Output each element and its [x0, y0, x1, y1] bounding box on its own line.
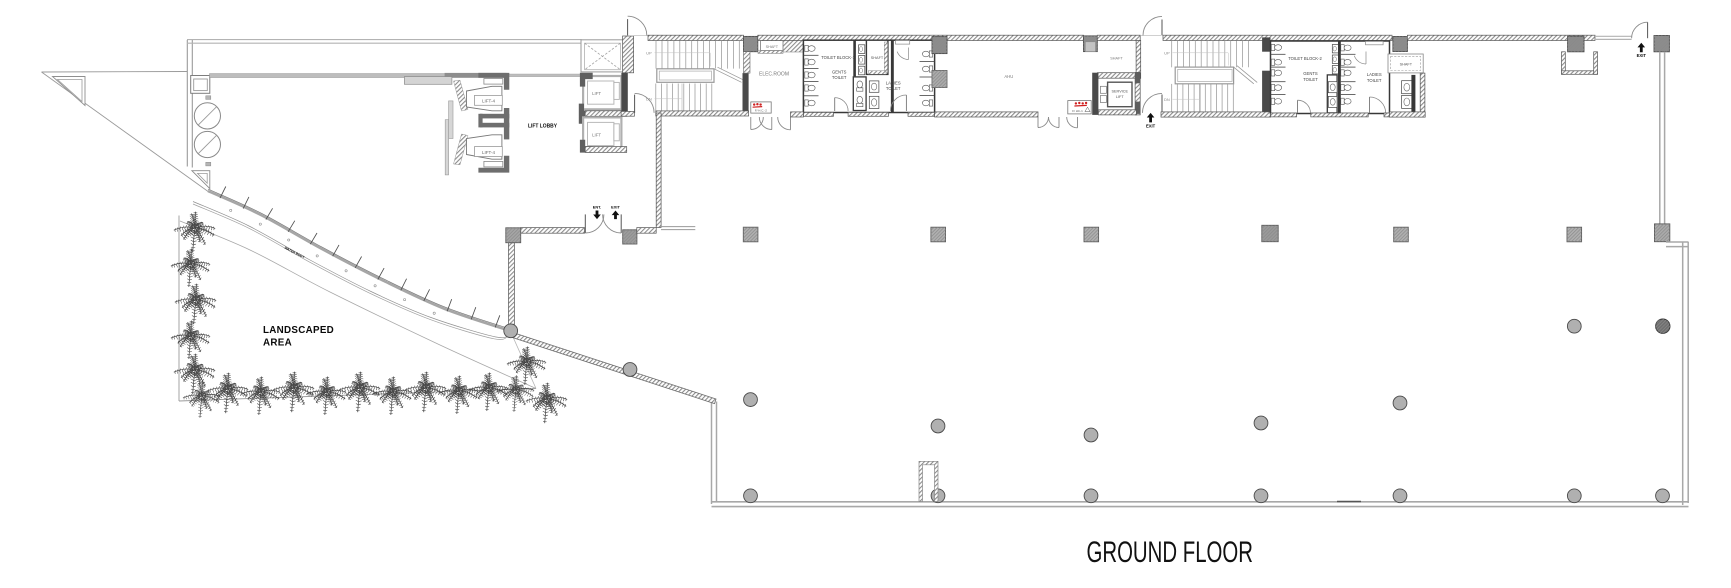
- svg-text:GENTS: GENTS: [1303, 71, 1318, 76]
- svg-text:LANDSCAPED: LANDSCAPED: [263, 325, 334, 336]
- svg-text:F/ H.C.-2: F/ H.C.-2: [755, 109, 767, 113]
- svg-text:TOILET BLOCK-2: TOILET BLOCK-2: [1288, 56, 1322, 61]
- svg-text:GENTS: GENTS: [832, 69, 847, 74]
- svg-text:SHAFT: SHAFT: [766, 45, 779, 49]
- svg-text:ELEC.ROOM: ELEC.ROOM: [759, 72, 789, 78]
- svg-text:LADIES: LADIES: [1367, 72, 1382, 77]
- svg-text:TOILET BLOCK-1: TOILET BLOCK-1: [821, 55, 855, 60]
- svg-text:DN: DN: [646, 96, 652, 101]
- svg-text:TOILET: TOILET: [1303, 77, 1318, 82]
- svg-text:SHAFT: SHAFT: [1110, 57, 1123, 61]
- svg-text:DN: DN: [1164, 97, 1170, 102]
- svg-text:LIFT LOBBY: LIFT LOBBY: [528, 123, 557, 129]
- svg-text:LIFT: LIFT: [592, 91, 601, 96]
- svg-text:TOILET: TOILET: [886, 86, 901, 91]
- svg-text:LIFT-4: LIFT-4: [482, 150, 496, 155]
- svg-text:EXIT: EXIT: [611, 204, 620, 209]
- svg-text:AREA: AREA: [263, 338, 292, 349]
- svg-text:SHAFT: SHAFT: [1400, 63, 1413, 67]
- svg-text:LIFT-4: LIFT-4: [482, 99, 496, 104]
- svg-text:TOILET: TOILET: [832, 75, 847, 80]
- svg-text:TOILET: TOILET: [1367, 78, 1382, 83]
- svg-text:UP: UP: [646, 50, 652, 55]
- svg-text:F/ HC-1: F/ HC-1: [1072, 109, 1083, 113]
- svg-text:GROUND FLOOR: GROUND FLOOR: [1087, 536, 1254, 569]
- svg-text:LIFT: LIFT: [592, 132, 601, 137]
- svg-text:LIFT: LIFT: [1116, 95, 1124, 99]
- svg-text:SERVICE: SERVICE: [1111, 90, 1128, 94]
- svg-text:LADIES: LADIES: [886, 80, 901, 85]
- svg-text:UP: UP: [1164, 50, 1170, 55]
- svg-text:EXIT: EXIT: [1146, 123, 1156, 128]
- svg-text:EXIT: EXIT: [1637, 53, 1647, 58]
- svg-text:AHU: AHU: [1004, 74, 1013, 79]
- svg-text:ENT.: ENT.: [593, 204, 601, 209]
- svg-text:SHAFT: SHAFT: [871, 56, 884, 60]
